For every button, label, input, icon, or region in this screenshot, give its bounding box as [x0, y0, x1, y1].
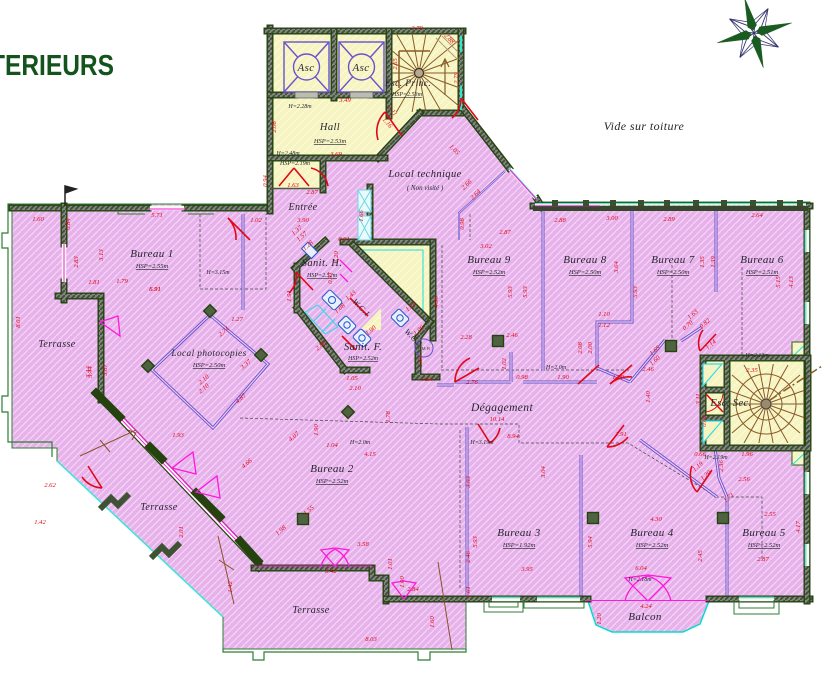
svg-text:Bureau 8: Bureau 8 [563, 254, 607, 266]
svg-text:2.00: 2.00 [587, 342, 594, 354]
svg-text:Sanit. F.: Sanit. F. [344, 342, 382, 353]
svg-text:6.04: 6.04 [635, 565, 647, 572]
svg-text:2.56: 2.56 [738, 476, 750, 483]
svg-text:HSP=2.50m: HSP=2.50m [568, 269, 602, 276]
svg-text:1.10: 1.10 [598, 311, 610, 318]
svg-text:8.01: 8.01 [15, 316, 22, 328]
svg-text:Bureau 6: Bureau 6 [740, 254, 784, 266]
svg-text:1.39: 1.39 [710, 256, 717, 268]
svg-text:1.78: 1.78 [385, 411, 392, 423]
svg-text:1.01: 1.01 [387, 558, 394, 570]
svg-text:1.96: 1.96 [741, 451, 753, 458]
svg-text:2.35: 2.35 [746, 367, 758, 374]
svg-text:Hall: Hall [319, 122, 340, 133]
svg-text:1.35: 1.35 [699, 256, 706, 268]
svg-text:1.66: 1.66 [358, 210, 365, 222]
svg-text:1.79: 1.79 [116, 278, 128, 285]
svg-text:2.89: 2.89 [663, 216, 675, 223]
svg-text:8.94: 8.94 [507, 433, 519, 440]
svg-text:Bureau 2: Bureau 2 [310, 463, 354, 475]
svg-text:0.98: 0.98 [459, 218, 466, 230]
svg-text:5.94: 5.94 [587, 536, 594, 548]
svg-text:3.95: 3.95 [520, 566, 533, 573]
svg-text:3.69: 3.69 [329, 151, 342, 158]
svg-text:Esc. Sec.: Esc. Sec. [709, 398, 751, 409]
svg-text:1.61: 1.61 [465, 586, 472, 598]
svg-text:HSP=1.92m: HSP=1.92m [502, 542, 536, 549]
svg-text:Bureau 3: Bureau 3 [497, 527, 541, 539]
svg-text:2.79: 2.79 [453, 72, 460, 84]
svg-text:Bureau 4: Bureau 4 [630, 527, 674, 539]
svg-text:1.91: 1.91 [286, 290, 293, 302]
svg-text:HSP=2.53m: HSP=2.53m [313, 138, 347, 145]
svg-text:Bureau 1: Bureau 1 [130, 248, 173, 260]
svg-text:Asc: Asc [296, 62, 314, 74]
svg-text:Local photocopies: Local photocopies [170, 349, 246, 359]
svg-text:2.28: 2.28 [460, 334, 472, 341]
svg-text:TERIEURS: TERIEURS [0, 50, 114, 82]
svg-text:HSP=2.52m: HSP=2.52m [347, 356, 379, 362]
svg-text:2.55: 2.55 [764, 511, 776, 518]
svg-text:H=2.0m: H=2.0m [545, 365, 567, 371]
svg-text:Bureau 7: Bureau 7 [651, 254, 695, 266]
svg-text:3.02: 3.02 [479, 243, 492, 250]
svg-text:HSP=2.50m: HSP=2.50m [656, 269, 690, 276]
svg-text:3.04: 3.04 [540, 466, 547, 479]
svg-text:1.93: 1.93 [172, 432, 184, 439]
svg-text:3.13: 3.13 [98, 249, 105, 262]
svg-text:1.12: 1.12 [598, 322, 610, 329]
svg-text:HSP=2.52m: HSP=2.52m [315, 478, 349, 485]
svg-text:2.88: 2.88 [554, 217, 566, 224]
svg-text:Bureau 9: Bureau 9 [467, 254, 511, 266]
svg-text:1.00: 1.00 [399, 576, 406, 588]
svg-text:0.91: 0.91 [338, 236, 350, 243]
svg-text:3.00: 3.00 [605, 215, 618, 222]
svg-text:H=2.48m: H=2.48m [275, 150, 300, 157]
svg-text:3.64: 3.64 [613, 261, 620, 274]
svg-text:1.91: 1.91 [615, 431, 627, 438]
svg-text:1.60: 1.60 [429, 616, 436, 628]
svg-text:1.63: 1.63 [287, 182, 299, 189]
svg-text:Terrasse: Terrasse [38, 339, 75, 350]
svg-text:0.94: 0.94 [262, 175, 269, 187]
svg-text:2.87: 2.87 [306, 189, 318, 196]
svg-text:HSP=2.52m: HSP=2.52m [472, 269, 506, 276]
svg-text:0.97: 0.97 [327, 272, 334, 284]
svg-text:H=2.19m: H=2.19m [703, 455, 728, 461]
svg-text:0.98: 0.98 [516, 374, 528, 381]
svg-text:2.36: 2.36 [718, 460, 725, 472]
svg-text:2.76: 2.76 [466, 379, 478, 386]
svg-text:3.67: 3.67 [102, 364, 109, 377]
svg-text:Entrée: Entrée [287, 202, 317, 213]
svg-text:HSP=2.52m: HSP=2.52m [747, 542, 781, 549]
svg-text:1.42: 1.42 [227, 581, 234, 593]
svg-text:4.96: 4.96 [433, 296, 440, 308]
svg-text:Bureau 5: Bureau 5 [742, 527, 786, 539]
svg-text:H=3.15m: H=3.15m [205, 270, 230, 276]
svg-text:Terrasse: Terrasse [292, 605, 329, 616]
svg-text:5.71: 5.71 [151, 212, 163, 219]
svg-text:5.93: 5.93 [507, 286, 514, 298]
svg-text:Balcon: Balcon [628, 611, 662, 623]
svg-text:H=2.0m: H=2.0m [349, 440, 371, 446]
svg-text:5.93: 5.93 [632, 286, 639, 298]
svg-text:H=2.12m: H=2.12m [744, 353, 769, 359]
svg-text:HSP=2.52m: HSP=2.52m [635, 542, 669, 549]
svg-text:1.40: 1.40 [645, 391, 652, 403]
svg-text:4.30: 4.30 [650, 516, 662, 523]
svg-text:1.05: 1.05 [346, 375, 358, 382]
svg-text:HSP=2.53m: HSP=2.53m [391, 92, 423, 98]
svg-text:1.02: 1.02 [250, 217, 262, 224]
svg-text:1.90: 1.90 [557, 374, 569, 381]
svg-text:1.04: 1.04 [326, 442, 338, 449]
svg-text:1.60: 1.60 [32, 216, 44, 223]
svg-text:4.13: 4.13 [788, 276, 795, 288]
svg-text:HSP=2.19m: HSP=2.19m [279, 161, 311, 167]
svg-text:HSP=2.55m: HSP=2.55m [135, 263, 169, 270]
svg-text:1.02: 1.02 [501, 358, 508, 370]
svg-text:1.20: 1.20 [596, 613, 603, 625]
svg-text:1.27: 1.27 [231, 316, 243, 323]
svg-text:3.03: 3.03 [465, 476, 472, 489]
svg-text:0.66: 0.66 [701, 415, 708, 427]
svg-text:H=2.18m: H=2.18m [627, 577, 652, 583]
svg-text:5.15: 5.15 [775, 276, 782, 288]
svg-text:HSP=2.51m: HSP=2.51m [745, 269, 779, 276]
svg-text:2.10: 2.10 [349, 385, 361, 392]
svg-text:H=3.19m: H=3.19m [469, 440, 494, 446]
svg-text:Terrasse: Terrasse [140, 502, 177, 513]
svg-text:3.90: 3.90 [296, 217, 309, 224]
svg-text:10.14: 10.14 [490, 416, 506, 423]
svg-text:HSP=2.50m: HSP=2.50m [192, 362, 226, 369]
svg-text:Local technique: Local technique [387, 169, 461, 180]
svg-text:0.66: 0.66 [694, 451, 706, 458]
svg-text:3.11: 3.11 [695, 393, 702, 405]
svg-text:Dégagement: Dégagement [470, 402, 534, 414]
svg-text:2.84: 2.84 [407, 586, 419, 593]
svg-text:4.15: 4.15 [364, 451, 376, 458]
svg-text:2.87: 2.87 [499, 229, 511, 236]
svg-text:P.M.R: P.M.R [418, 346, 431, 351]
svg-text:2.64: 2.64 [751, 212, 763, 219]
svg-text:2.01: 2.01 [178, 526, 185, 538]
svg-text:2.08: 2.08 [577, 342, 584, 354]
svg-text:2.46: 2.46 [506, 332, 518, 339]
svg-text:2.83: 2.83 [73, 256, 80, 268]
svg-text:2.45: 2.45 [697, 550, 704, 562]
svg-text:5.91: 5.91 [149, 286, 161, 293]
svg-text:Asc: Asc [351, 62, 369, 74]
svg-text:5.93: 5.93 [522, 286, 529, 298]
svg-text:5.93: 5.93 [472, 536, 479, 548]
svg-text:4.17: 4.17 [795, 521, 802, 533]
svg-text:2.79: 2.79 [411, 25, 423, 32]
svg-text:3.49: 3.49 [338, 97, 351, 104]
svg-text:8.03: 8.03 [365, 636, 377, 643]
svg-text:4.24: 4.24 [640, 603, 652, 610]
svg-text:3.58: 3.58 [356, 541, 369, 548]
svg-text:2.62: 2.62 [44, 482, 56, 489]
svg-text:1.04: 1.04 [417, 355, 424, 367]
svg-text:3.44: 3.44 [85, 366, 92, 379]
svg-text:2.65: 2.65 [392, 58, 399, 70]
svg-text:( Non visité ): ( Non visité ) [407, 184, 444, 192]
svg-text:0.84: 0.84 [65, 218, 72, 230]
svg-text:Esc. Princ.: Esc. Princ. [384, 79, 431, 89]
svg-text:1.29: 1.29 [612, 374, 624, 381]
svg-text:1.90: 1.90 [313, 424, 320, 436]
svg-text:1.20: 1.20 [333, 251, 340, 263]
svg-text:0.54: 0.54 [421, 376, 433, 383]
svg-text:1.42: 1.42 [34, 519, 46, 526]
svg-text:2.46: 2.46 [465, 551, 472, 563]
svg-text:2.08: 2.08 [271, 121, 278, 133]
svg-text:2.87: 2.87 [757, 556, 769, 563]
svg-text:Vide sur toiture: Vide sur toiture [604, 119, 685, 133]
svg-text:1.81: 1.81 [88, 279, 100, 286]
svg-text:3.42: 3.42 [324, 568, 337, 575]
svg-text:H=2.28m: H=2.28m [287, 104, 312, 110]
